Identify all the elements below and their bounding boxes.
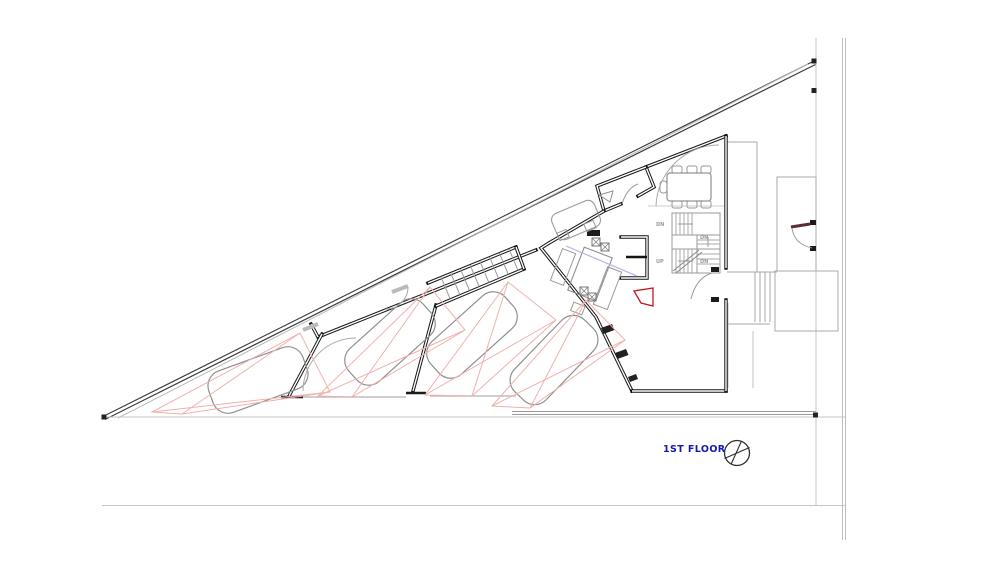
interior-gray-rect — [687, 166, 697, 173]
house-walls-pline — [597, 167, 646, 211]
house-walls-rect — [711, 297, 719, 302]
site-lines-rect — [812, 88, 817, 93]
site-lines-rect — [812, 59, 817, 64]
annex-structures — [727, 142, 838, 388]
interior-gray-rect — [687, 201, 697, 208]
interior-gray-rect — [503, 309, 604, 411]
house-walls-path — [628, 374, 638, 382]
interior-gray-path — [691, 273, 712, 299]
interior-gray-rect — [672, 166, 682, 173]
annex-structures-rect — [810, 246, 816, 251]
interior-gray-path — [601, 243, 609, 251]
north-symbol — [725, 441, 750, 466]
red-markings-line — [352, 287, 430, 397]
annex-structures-path — [792, 228, 812, 248]
floorplan-canvas: DNDNUPDN 1ST FLOOR — [0, 0, 986, 585]
interior-gray-rect — [420, 285, 524, 385]
red-markings-path — [634, 288, 653, 306]
house-walls-path — [601, 324, 615, 334]
floorplan-svg: DNDNUPDN — [0, 0, 986, 585]
interior-gray-rect — [593, 267, 621, 310]
interior-gray-path — [580, 287, 588, 295]
interior-gray-rect — [667, 173, 711, 201]
site-lines-line — [118, 64, 808, 418]
house-walls-line — [303, 324, 318, 330]
annex-structures-pline — [727, 142, 757, 272]
north-symbol-line — [731, 441, 742, 465]
house-walls-line — [392, 286, 408, 292]
site-lines-rect — [102, 415, 107, 420]
interior-gray-rect — [701, 166, 711, 173]
interior-gray-rect — [672, 201, 682, 208]
stair-text-text: DN — [700, 235, 708, 241]
house-walls — [281, 136, 726, 397]
interior-gray-path — [622, 184, 638, 204]
house-walls-path — [615, 349, 629, 359]
floor-label: 1ST FLOOR — [663, 444, 726, 455]
stair-text-text: UP — [656, 259, 664, 265]
annex-structures-line — [791, 224, 810, 227]
annex-structures-rect — [775, 271, 838, 331]
site-lines-rect — [813, 413, 818, 418]
red-markings-line — [472, 282, 508, 396]
north-symbol-line — [725, 448, 750, 459]
stair-text-text: DN — [656, 222, 664, 228]
interior-gray-path — [656, 145, 719, 206]
interior-gray — [203, 145, 724, 418]
annex-structures-rect — [810, 220, 816, 225]
stair-text-text: DN — [700, 259, 708, 265]
interior-gray-rect — [701, 201, 711, 208]
house-walls-rect — [711, 267, 719, 272]
interior-gray-path — [592, 238, 600, 246]
